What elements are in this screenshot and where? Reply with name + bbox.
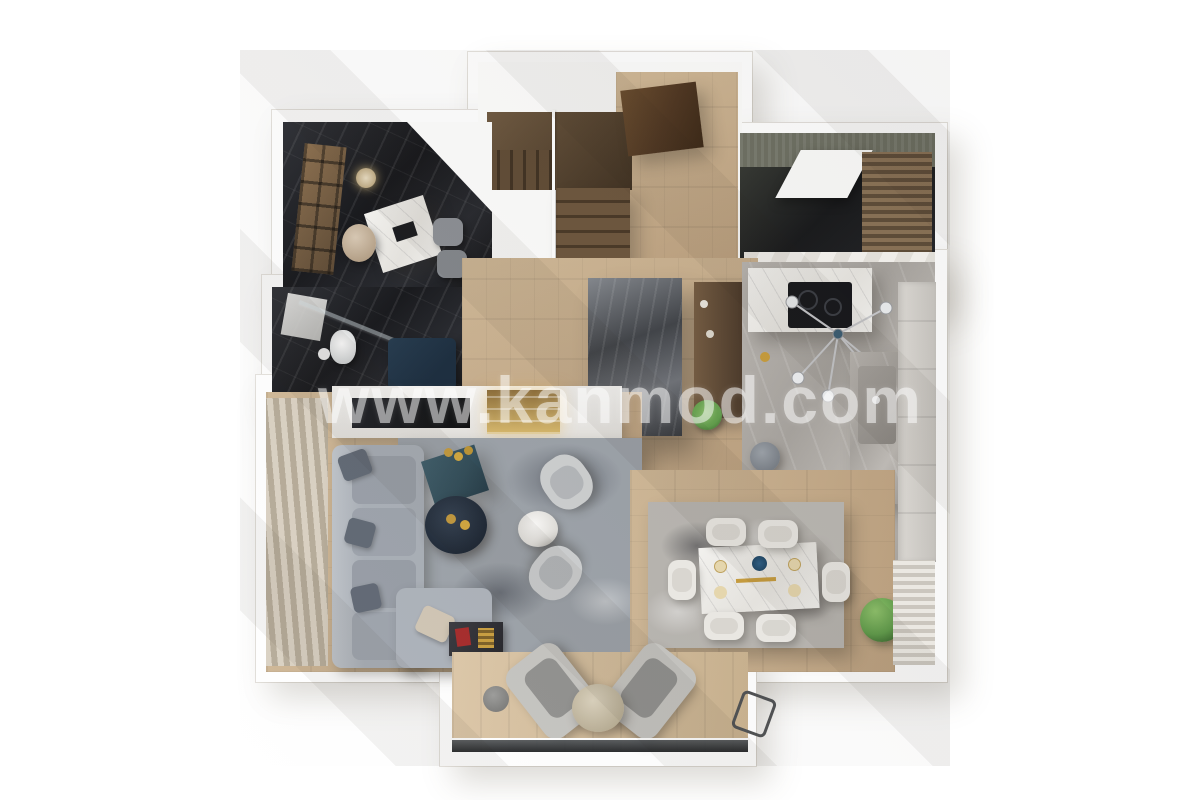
table-centerpiece bbox=[752, 556, 767, 571]
console-decor-2 bbox=[706, 330, 714, 338]
dining-chair-pad bbox=[764, 526, 792, 543]
terrace-side-table bbox=[483, 686, 509, 712]
dining-chair-right bbox=[822, 562, 850, 602]
terrace-glass-railing bbox=[452, 738, 748, 752]
pendant-lamp bbox=[356, 168, 376, 188]
louver-panel bbox=[862, 152, 932, 266]
dining-chair-pad bbox=[710, 618, 738, 635]
tv-screen bbox=[352, 398, 470, 428]
dining-chair-left bbox=[668, 560, 696, 600]
dining-chair-pad bbox=[672, 568, 692, 592]
coffee-table bbox=[425, 496, 487, 554]
shower-tray bbox=[281, 293, 328, 341]
stair-run-upper bbox=[487, 150, 557, 190]
place-setting-left bbox=[714, 560, 727, 573]
kitchen-tall-cabinets bbox=[898, 282, 936, 562]
dining-chair-top-2 bbox=[758, 520, 798, 548]
dining-chair-bottom-2 bbox=[756, 614, 796, 642]
gold-flowers bbox=[444, 448, 453, 457]
dining-chair-bottom-1 bbox=[704, 612, 744, 640]
toilet bbox=[330, 330, 356, 364]
entry-door bbox=[620, 82, 703, 157]
floorplan-render: www.kanmod.com bbox=[0, 0, 1200, 800]
dining-chair-top-1 bbox=[706, 518, 746, 546]
counter-decor-gold bbox=[760, 352, 770, 362]
armchair-1-cushion bbox=[545, 461, 588, 504]
bar-stool-1 bbox=[750, 442, 780, 472]
dining-chair-pad bbox=[826, 570, 846, 594]
side-table bbox=[518, 511, 558, 547]
right-shutter-band bbox=[893, 560, 935, 665]
dining-chair-pad bbox=[762, 620, 790, 637]
red-books bbox=[455, 627, 471, 647]
living-curtains bbox=[266, 398, 328, 666]
shower-head bbox=[318, 348, 330, 360]
glass-railing-stair bbox=[552, 110, 555, 268]
hallway-plant bbox=[692, 400, 722, 430]
study-armchair bbox=[342, 224, 376, 262]
console-decor-1 bbox=[700, 300, 708, 308]
bathtub bbox=[388, 338, 456, 390]
display-cabinet bbox=[487, 390, 560, 434]
place-setting-right bbox=[788, 558, 801, 571]
stair-run-lower bbox=[556, 188, 630, 268]
kitchen-sink bbox=[858, 366, 896, 444]
dining-chair-pad bbox=[712, 524, 740, 541]
armchair-2-cushion bbox=[534, 551, 577, 594]
terrace-table bbox=[572, 684, 624, 732]
coffee-table-decor bbox=[446, 514, 456, 524]
sink-faucet bbox=[872, 396, 880, 404]
study-chair-1 bbox=[433, 218, 463, 246]
gold-books bbox=[478, 628, 494, 648]
